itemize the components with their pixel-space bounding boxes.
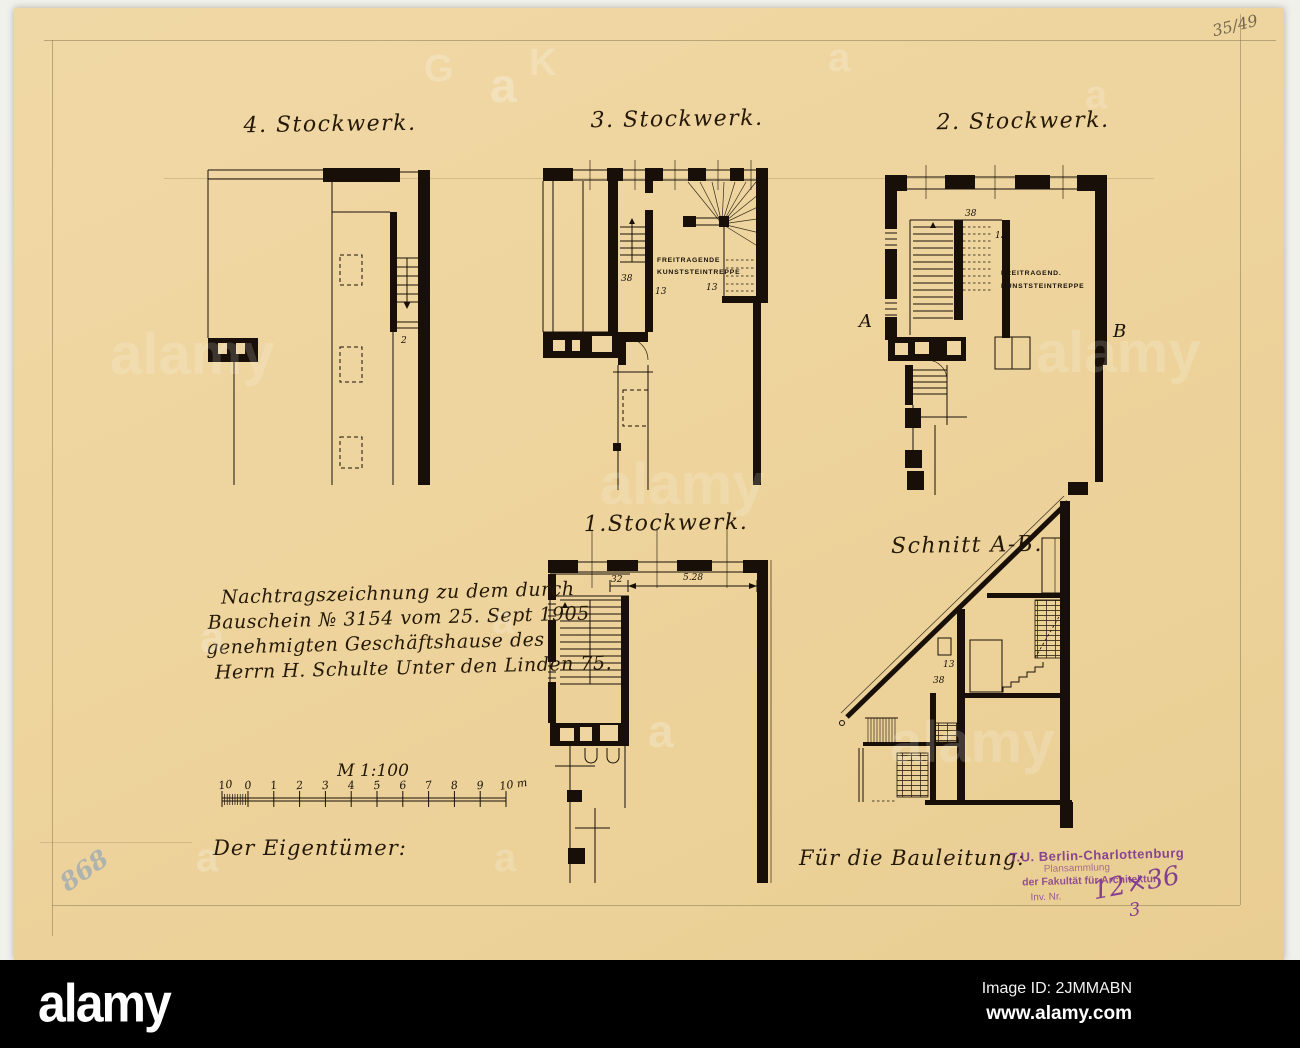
svg-text:1: 1 [269, 779, 278, 793]
alamy-url: www.alamy.com [982, 1003, 1132, 1025]
frame-line-left [52, 40, 53, 936]
double-run-stair [910, 220, 1002, 335]
svg-text:5: 5 [373, 779, 382, 793]
section-drawing: 13 38 [835, 495, 1105, 830]
railing [865, 718, 898, 742]
svg-text:8: 8 [450, 779, 459, 793]
roof [840, 496, 1069, 726]
frame-line-top [44, 40, 1276, 41]
construction-signoff: Für die Bauleitung: [799, 846, 1025, 870]
alamy-watermark: a [828, 38, 850, 78]
dim-38: 38 [621, 274, 633, 284]
stock-photo-page: 35/49 868 4. Stockwerk. 3. Stockwerk. 2.… [0, 0, 1300, 1048]
dim-label: 2 [400, 336, 407, 346]
alamy-watermark: a [494, 838, 516, 878]
svg-text:9: 9 [476, 779, 485, 793]
floor-plan-2: FREITRAGEND. KUNSTSTEINTREPPE 38 13 A B [855, 165, 1145, 495]
straight-stair [620, 218, 645, 262]
scale-bar: 10012345678910 m [214, 780, 514, 820]
stamp-line4: Inv. Nr. [1030, 890, 1061, 904]
dimension-line: 32 5.28 [610, 573, 757, 592]
lower-rooms [550, 723, 629, 883]
alamy-footer-bar: alamy Image ID: 2JMMABN www.alamy.com [0, 960, 1300, 1048]
stair-note-line1: FREITRAGENDE [657, 257, 720, 264]
svg-text:10 m: 10 m [499, 776, 528, 793]
floor-plan-1: 32 5.28 [535, 508, 790, 888]
dim-38: 38 [965, 209, 977, 219]
svg-text:6: 6 [398, 779, 407, 793]
svg-text:3: 3 [321, 779, 330, 793]
stair-note-line2: KUNSTSTEINTREPPE [657, 269, 740, 276]
walls [543, 168, 768, 485]
frame-line-right [1240, 14, 1241, 905]
svg-text:2: 2 [294, 779, 304, 793]
stair-note-line2: KUNSTSTEINTREPPE [1001, 283, 1084, 290]
title-floor-2: 2. Stockwerk. [923, 108, 1123, 136]
approval-annotation: Nachtragszeichnung zu dem durch Bauschei… [205, 576, 613, 686]
title-floor-4: 4. Stockwerk. [230, 111, 430, 139]
archive-stamp: T.U. Berlin-Charlottenburg Plansammlung … [1009, 845, 1225, 905]
scale-major-ticks: 10012345678910 m [218, 776, 529, 807]
owner-signoff: Der Eigentümer: [213, 836, 407, 860]
section-marker-a: A [857, 311, 872, 332]
image-meta: Image ID: 2JMMABN www.alamy.com [982, 980, 1132, 1025]
stamp-inventory-number: 12×36 [1092, 870, 1181, 899]
alamy-watermark: a [490, 63, 517, 111]
dim-38: 38 [933, 676, 945, 686]
floor-plan-3: FREITRAGENDE KUNSTSTEINTREPPE 38 13 13 [520, 160, 800, 500]
lower-rooms [543, 332, 653, 490]
dim-32: 32 [611, 575, 623, 585]
image-id: Image ID: 2JMMABN [982, 980, 1132, 998]
stairs [897, 600, 1067, 797]
dashed-openings [340, 255, 362, 468]
section-marker-b: B [1112, 321, 1126, 342]
stair [397, 258, 418, 328]
winder-stair [683, 182, 768, 303]
pencil-crease-line [40, 842, 192, 843]
lower-rooms [888, 337, 1030, 495]
walls [208, 168, 430, 485]
stamp-inventory-sub: 3 [1128, 903, 1141, 917]
frame-line-bottom [52, 905, 1240, 906]
dim-13b: 13 [706, 283, 718, 293]
scale-minor-ticks [225, 794, 246, 805]
svg-text:0: 0 [244, 779, 253, 793]
dim-13: 13 [943, 660, 955, 670]
dim-528: 5.28 [683, 573, 703, 583]
alamy-logo: alamy [38, 972, 170, 1035]
facade-wall [885, 165, 1107, 199]
drawing-sheet: 35/49 868 4. Stockwerk. 3. Stockwerk. 2.… [14, 8, 1284, 960]
svg-text:4: 4 [346, 779, 356, 793]
svg-text:10: 10 [218, 778, 234, 793]
walls [757, 560, 771, 883]
dim-13: 13 [655, 287, 667, 297]
pencil-number-note: 868 [54, 844, 113, 898]
dim-13: 13 [995, 231, 1007, 241]
alamy-watermark: K [529, 44, 556, 82]
svg-text:7: 7 [424, 779, 433, 793]
alamy-watermark: G [424, 50, 454, 88]
title-floor-3: 3. Stockwerk. [577, 106, 777, 134]
stair-note-line1: FREITRAGEND. [1001, 270, 1062, 277]
archive-corner-note: 35/49 [1210, 11, 1259, 41]
floor-plan-4: 2 [180, 155, 480, 505]
